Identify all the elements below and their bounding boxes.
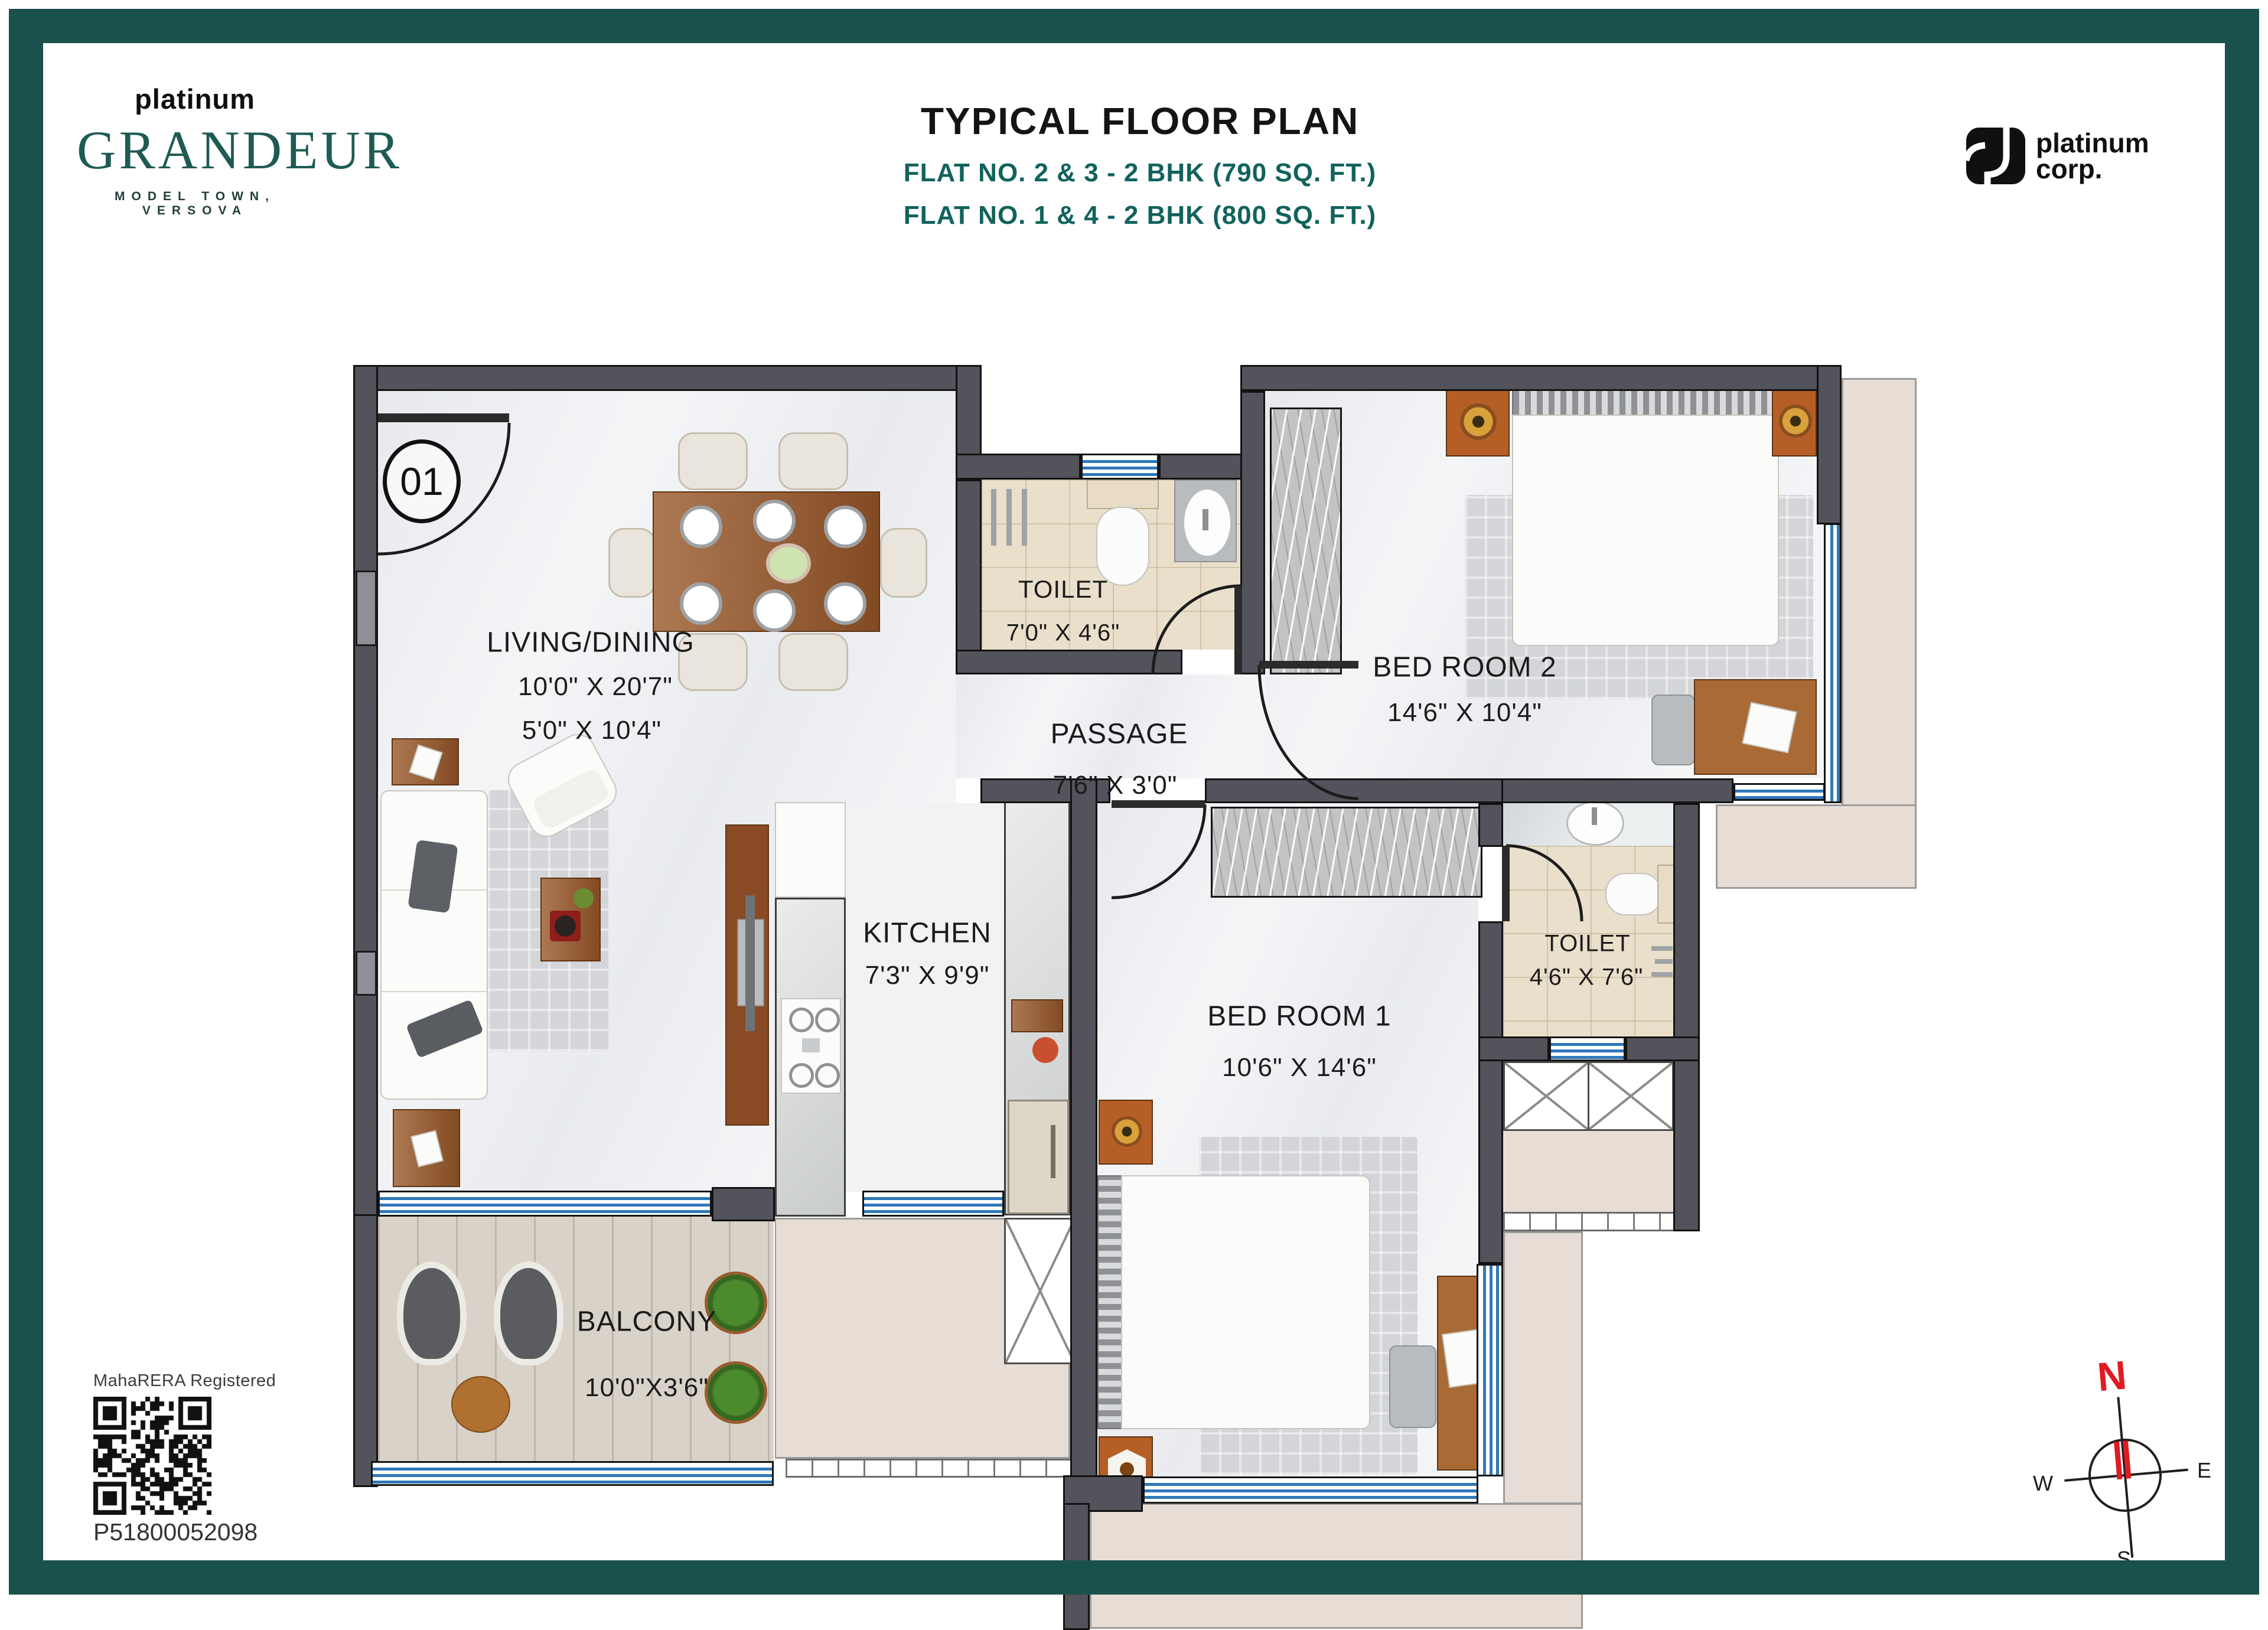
kitchen-sink-cabinet: [775, 802, 846, 898]
duct-xbox-toilet2-left: [1503, 1061, 1589, 1131]
balcony-chair: [397, 1261, 467, 1365]
wall: [353, 1214, 378, 1487]
balcony-table: [451, 1376, 510, 1433]
kitchen-floor: [846, 803, 1004, 1192]
table-centerpiece: [770, 547, 807, 580]
subtitle-flat-1-4: FLAT NO. 1 & 4 - 2 BHK (800 SQ. FT.): [756, 201, 1524, 230]
wall: [353, 365, 378, 1217]
svg-text:S: S: [2117, 1547, 2131, 1571]
balcony-label: BALCONY: [577, 1306, 716, 1338]
corp-text-line2: corp.: [2036, 156, 2149, 182]
dining-chair: [678, 432, 748, 490]
toilet1-wc-icon: [1096, 507, 1149, 586]
kitchen-tray: [1011, 999, 1063, 1032]
dining-table: [653, 491, 880, 632]
wall: [1478, 921, 1503, 1264]
toilet1-label: TOILET: [1018, 575, 1108, 604]
bedroom1-nightstand-top: [1099, 1100, 1153, 1165]
wall: [956, 454, 1081, 480]
side-table-top: [392, 738, 459, 785]
window: [1824, 523, 1842, 803]
toilet2-label: TOILET: [1544, 931, 1630, 957]
compass: N W E S: [2020, 1341, 2233, 1571]
right-ledge-lower: [1716, 804, 1917, 889]
maharera-qr-code: [93, 1397, 211, 1515]
wall: [1240, 391, 1265, 674]
brand-tagline: MODEL TOWN, VERSOVA: [77, 190, 313, 218]
balcony-dim: 10'0"X3'6": [585, 1373, 709, 1403]
rera-label: MahaRERA Registered: [93, 1371, 276, 1391]
wall: [712, 1187, 775, 1221]
dining-chair: [778, 633, 848, 691]
kitchen-stove-icon: [781, 998, 841, 1094]
rera-number: P51800052098: [93, 1518, 276, 1546]
wall: [1625, 1036, 1700, 1061]
platinum-corp-monogram-icon: [1965, 126, 2026, 185]
wall: [1478, 1036, 1549, 1061]
passage-dim: 7'6" X 3'0": [1053, 771, 1178, 800]
unit-number-badge: 01: [383, 439, 461, 523]
brand-logo: platinum GRANDEUR MODEL TOWN, VERSOVA: [77, 83, 313, 218]
wall: [1205, 778, 1503, 803]
page-title: TYPICAL FLOOR PLAN: [756, 99, 1524, 143]
toilet1-wc-tank: [1087, 480, 1159, 509]
toilet1-shower-icon: [991, 489, 1042, 548]
bedroom2-wardrobe: [1270, 407, 1342, 674]
header-titles: TYPICAL FLOOR PLAN FLAT NO. 2 & 3 - 2 BH…: [756, 99, 1524, 230]
terrace-strip: [1503, 1231, 1583, 1504]
svg-text:N: N: [2096, 1352, 2129, 1400]
wall: [1817, 365, 1842, 524]
brand-pre: platinum: [77, 83, 313, 115]
window: [1081, 454, 1159, 480]
svg-text:W: W: [2033, 1471, 2053, 1495]
corp-text-line1: platinum: [2036, 130, 2149, 156]
toilet2-dim: 4'6" X 7'6": [1530, 964, 1644, 991]
bedroom1-dim: 10'6" X 14'6": [1222, 1053, 1377, 1083]
bedroom1-wardrobe: [1211, 807, 1482, 898]
side-table-bottom: [393, 1109, 460, 1187]
toilet2-ledge: [1503, 1131, 1673, 1212]
toilet2-wc-icon: [1605, 873, 1662, 915]
subtitle-flat-2-3: FLAT NO. 2 & 3 - 2 BHK (790 SQ. FT.): [756, 158, 1524, 188]
wall: [1063, 1503, 1090, 1630]
dining-chair: [608, 528, 656, 598]
tv-screen: [745, 895, 755, 1031]
window: [1549, 1036, 1625, 1061]
wall-niche: [356, 951, 377, 996]
balcony-chair: [494, 1261, 563, 1365]
bedroom2-label: BED ROOM 2: [1373, 651, 1556, 684]
service-railing: [786, 1459, 1070, 1478]
toilet1-sink-counter: [1174, 480, 1237, 562]
wall: [1070, 778, 1097, 1511]
kitchen-bowl: [1032, 1037, 1058, 1063]
bedroom1-bed: [1097, 1175, 1370, 1429]
wall-niche: [356, 570, 377, 646]
toilet2-shower-icon: [1651, 944, 1675, 985]
kitchen-dim: 7'3" X 9'9": [865, 961, 990, 990]
dining-chair: [778, 432, 848, 490]
wall: [1673, 803, 1700, 1231]
window: [1477, 1264, 1503, 1476]
brand-name: GRANDEUR: [77, 119, 313, 181]
bedroom2-nightstand-left: [1446, 387, 1510, 457]
window: [862, 1191, 1004, 1217]
duct-xbox-kitchen: [1004, 1218, 1076, 1364]
window: [1733, 783, 1825, 801]
wall: [354, 365, 980, 391]
bedroom2-chair: [1651, 695, 1695, 765]
platinum-corp-logo: platinum corp.: [1965, 126, 2149, 185]
wall: [956, 480, 982, 674]
window: [378, 1191, 712, 1217]
window: [1143, 1476, 1478, 1504]
sofa: [380, 790, 488, 1100]
balcony-plant: [704, 1354, 768, 1427]
kitchen-label: KITCHEN: [863, 917, 992, 950]
kitchen-fridge-icon: [1008, 1100, 1069, 1214]
living-room-label: LIVING/DINING: [487, 627, 695, 659]
wall: [956, 650, 1182, 674]
bottom-terrace: [1090, 1503, 1583, 1629]
dining-chair: [880, 528, 927, 598]
bedroom1-chair: [1389, 1345, 1436, 1428]
svg-text:E: E: [2197, 1458, 2211, 1482]
coffee-table: [540, 878, 601, 961]
living-room-dim1: 10'0" X 20'7": [518, 672, 673, 702]
toilet2-sink-icon: [1566, 801, 1624, 846]
rera-block: MahaRERA Registered P51800052098: [93, 1371, 276, 1546]
bedroom2-desk: [1694, 679, 1817, 775]
wall: [1240, 365, 1842, 391]
bedroom2-bed: [1512, 384, 1779, 646]
bedroom1-label: BED ROOM 1: [1207, 1000, 1391, 1033]
wall: [1478, 803, 1503, 847]
living-room-dim2: 5'0" X 10'4": [522, 716, 661, 745]
bedroom2-dim: 14'6" X 10'4": [1387, 698, 1542, 728]
toilet2-railing: [1503, 1212, 1700, 1231]
duct-xbox-toilet2-right: [1588, 1061, 1674, 1131]
toilet1-dim: 7'0" X 4'6": [1006, 620, 1120, 647]
bedroom2-nightstand-right: [1772, 387, 1817, 457]
passage-label: PASSAGE: [1051, 718, 1188, 751]
window: [371, 1461, 774, 1486]
